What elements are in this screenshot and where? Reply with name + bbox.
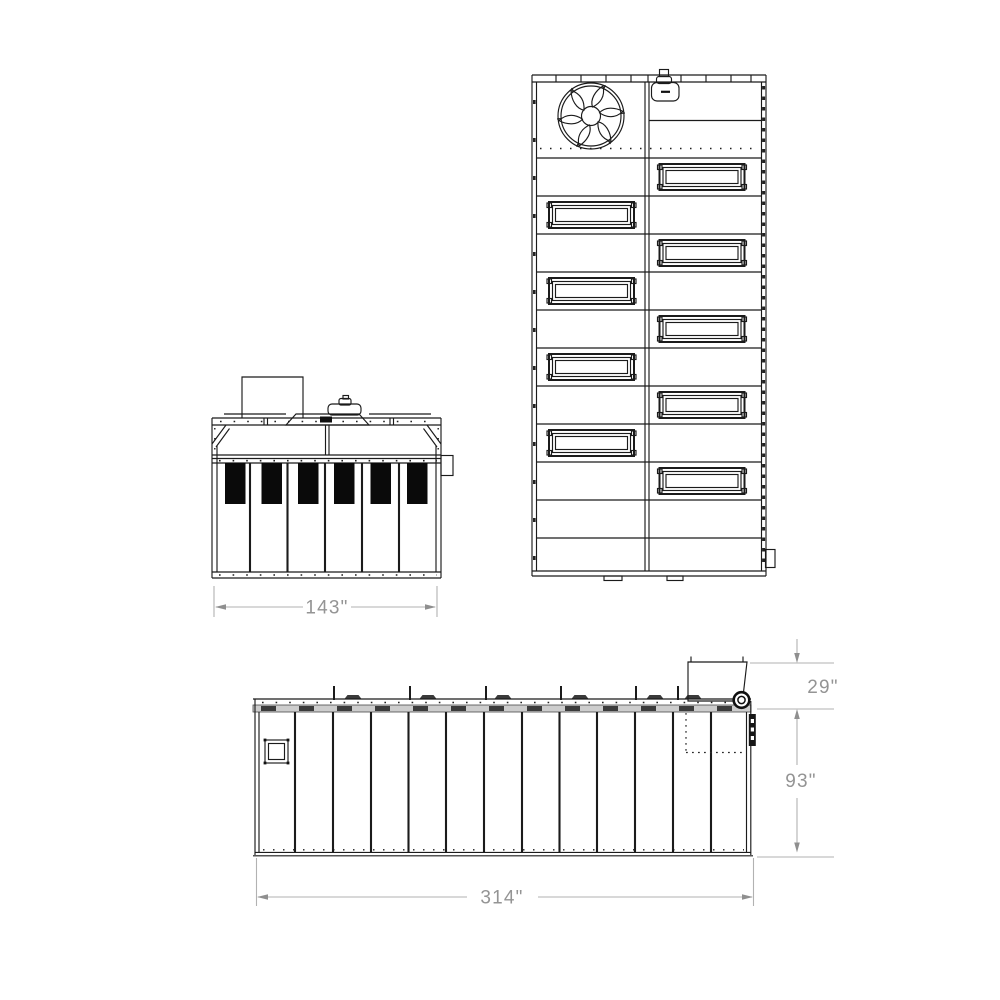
hidden-duct-lines [686,713,745,753]
panel-seams-side [295,712,711,852]
manufacturer-logo-mark [320,417,332,423]
filter-bags [225,463,428,504]
front-elevation-view [212,377,453,578]
access-panel [547,354,636,380]
exhaust-duct-front [242,377,303,418]
access-panel [547,278,636,304]
dimension-label-side-length: 314" [480,888,523,909]
side-bracket-plan [766,550,776,568]
fan-motor-plan [652,70,680,102]
motor-front [328,396,361,416]
dimension-label-duct-height: 29" [807,677,838,698]
access-panel [658,240,747,266]
side-elevation-view [253,657,756,856]
access-panel [658,392,747,418]
exhaust-fan-icon [557,83,625,149]
plan-view [532,70,775,581]
access-opening [264,739,290,765]
fan-hub-side [734,692,750,708]
access-panel [658,164,747,190]
access-panel [658,468,747,494]
side-bracket-front [441,456,453,476]
technical-drawing: 143" [0,0,1000,1000]
dimension-side-length: 314" [257,858,754,909]
dimension-front-width: 143" [214,586,437,619]
access-panel [547,430,636,456]
dimension-body-height: 93" [757,709,834,857]
dimension-duct-height: 29" [750,639,839,709]
dimension-label-front-width: 143" [305,598,348,619]
drawing-canvas: 143" [0,0,1000,1000]
access-panel [658,316,747,342]
access-panel [547,202,636,228]
hood-slopes [212,425,441,447]
dimension-label-body-height: 93" [785,771,816,792]
latch-side [749,714,756,746]
